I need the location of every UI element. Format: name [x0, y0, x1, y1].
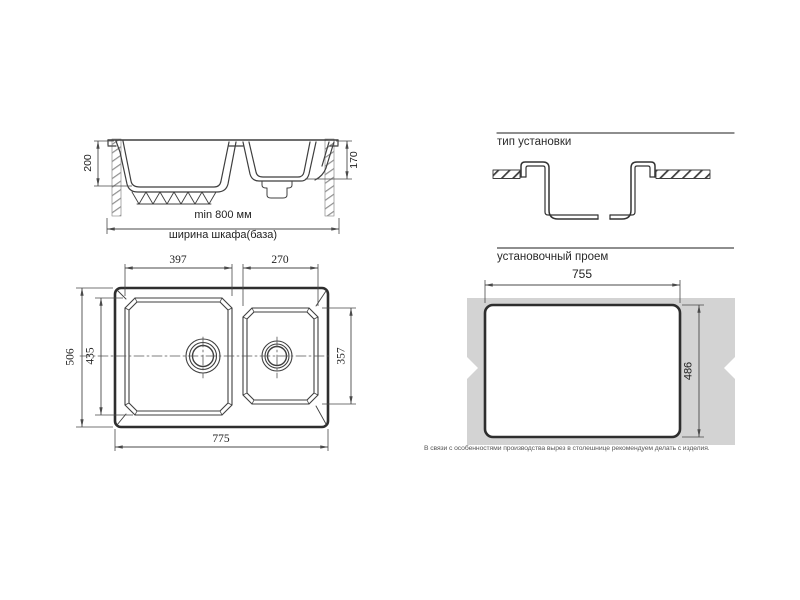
sink-outline: [115, 288, 328, 427]
section-title-install-type: тип установки: [497, 137, 571, 149]
side-view-drawing: [108, 139, 338, 216]
bowl-left-section: [116, 141, 236, 192]
countertop-left-hatch: [493, 170, 520, 179]
dim-label-min-width: min 800 мм: [194, 210, 251, 221]
sink-technical-drawing: 200 170 min 800 мм ширина шкафа(база) 39…: [0, 0, 800, 600]
dim-label-overall-width: 775: [212, 434, 229, 446]
countertop-right-hatch: [656, 170, 710, 179]
dim-label-cutout-height: 486: [684, 362, 695, 380]
top-view-drawing: [80, 288, 330, 427]
bowl-left-bottom-texture: [132, 192, 216, 204]
cutout-drawing: [461, 248, 741, 445]
sink-profile-left: [521, 162, 598, 219]
dim-label-depth-main: 200: [83, 154, 94, 172]
dim-label-bowl2-depth: 357: [336, 347, 348, 364]
section-title-cutout: установочный проем: [497, 252, 608, 264]
drawing-linework: [0, 0, 800, 600]
dim-label-overall-depth: 506: [65, 348, 77, 365]
cabinet-width-caption: ширина шкафа(база): [169, 230, 277, 241]
production-note: В связи с особенностями производства выр…: [424, 446, 754, 453]
dim-label-cutout-width: 755: [572, 268, 592, 280]
dim-label-depth-second: 170: [349, 151, 360, 169]
dim-label-bowl1-depth: 435: [85, 347, 97, 364]
drain-trap-section: [262, 181, 292, 198]
dim-label-bowl1-width: 397: [169, 255, 186, 267]
cutout-opening: [485, 305, 680, 437]
sink-profile-right: [610, 162, 655, 219]
dim-label-bowl2-width: 270: [271, 255, 288, 267]
